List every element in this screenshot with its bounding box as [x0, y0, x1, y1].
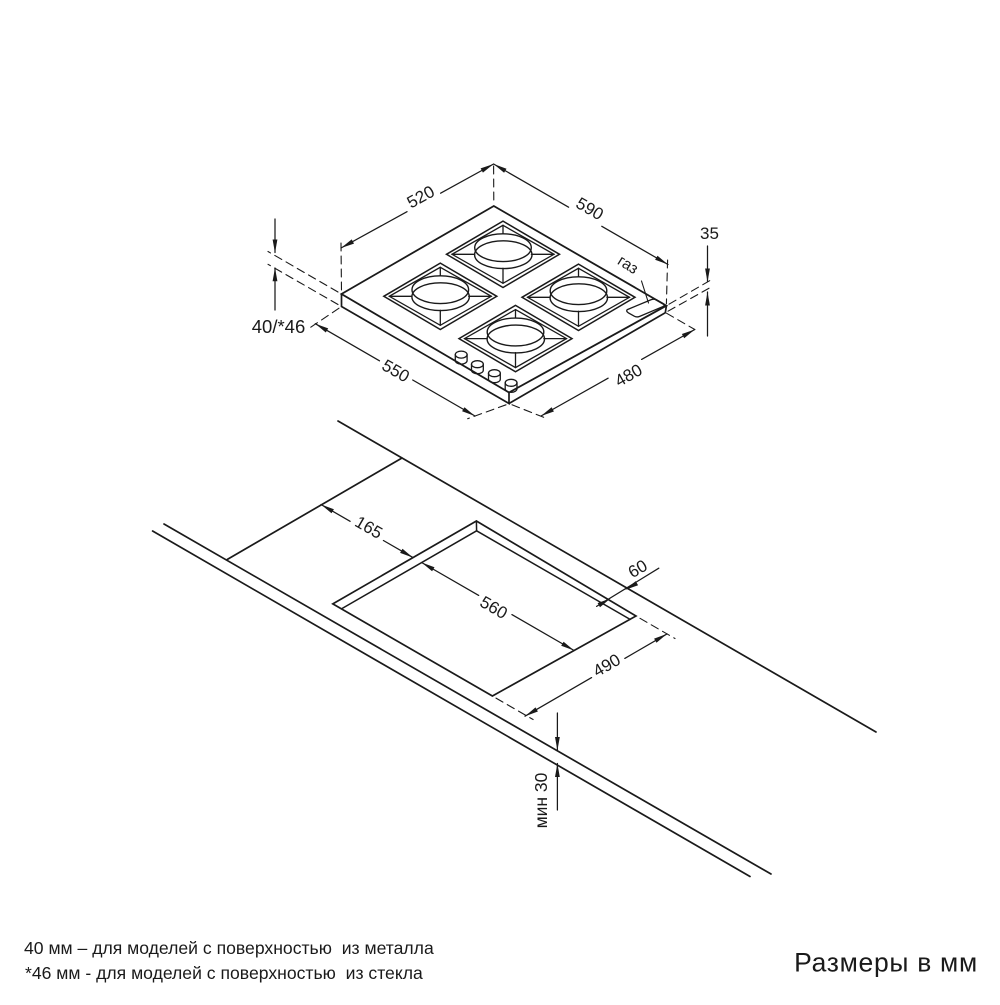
svg-text:40 мм – для моделей с поверхно: 40 мм – для моделей с поверхностью из ме…	[24, 938, 434, 958]
svg-text:35: 35	[700, 224, 719, 243]
svg-text:*46 мм - для моделей с поверхн: *46 мм - для моделей с поверхностью из с…	[25, 963, 423, 983]
svg-text:40/*46: 40/*46	[252, 316, 306, 337]
svg-text:мин 30: мин 30	[531, 772, 551, 828]
svg-text:Размеры в мм: Размеры в мм	[794, 948, 978, 978]
